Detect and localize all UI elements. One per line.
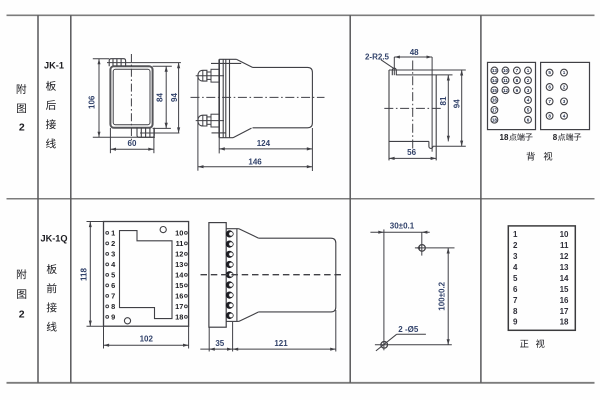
- svg-text:124: 124: [257, 139, 271, 148]
- svg-text:15: 15: [492, 88, 498, 93]
- svg-text:JK-1: JK-1: [44, 61, 64, 71]
- svg-text:16: 16: [492, 98, 498, 103]
- svg-text:2 -Ø5: 2 -Ø5: [398, 325, 419, 334]
- svg-text:10: 10: [175, 228, 183, 237]
- svg-text:1: 1: [527, 68, 530, 73]
- svg-text:9: 9: [516, 88, 519, 93]
- svg-text:6: 6: [527, 117, 530, 122]
- svg-text:18: 18: [492, 117, 498, 122]
- svg-text:146: 146: [248, 158, 262, 167]
- svg-text:10: 10: [503, 68, 509, 73]
- svg-text:7: 7: [111, 291, 115, 300]
- svg-text:4: 4: [513, 263, 518, 272]
- svg-text:8: 8: [553, 133, 558, 142]
- svg-text:12: 12: [175, 249, 183, 258]
- svg-text:2: 2: [19, 122, 25, 134]
- svg-text:84: 84: [155, 93, 164, 102]
- svg-text:8: 8: [111, 302, 115, 311]
- svg-text:12: 12: [503, 88, 509, 93]
- svg-text:2-R2.5: 2-R2.5: [365, 52, 390, 61]
- svg-text:1: 1: [563, 70, 566, 75]
- svg-text:1: 1: [111, 228, 115, 237]
- svg-text:14: 14: [560, 274, 569, 283]
- svg-text:JK-1Q: JK-1Q: [40, 234, 67, 244]
- svg-text:2: 2: [513, 241, 518, 250]
- svg-text:6: 6: [548, 85, 551, 90]
- svg-text:100±0.2: 100±0.2: [437, 281, 446, 310]
- svg-text:2: 2: [563, 85, 566, 90]
- svg-text:5: 5: [513, 274, 518, 283]
- svg-text:30±0.1: 30±0.1: [390, 221, 415, 230]
- svg-text:4: 4: [527, 98, 530, 103]
- svg-text:11: 11: [503, 78, 508, 83]
- svg-text:18: 18: [500, 133, 509, 142]
- svg-text:35: 35: [215, 339, 224, 348]
- svg-text:7: 7: [516, 68, 519, 73]
- svg-text:17: 17: [492, 108, 498, 113]
- svg-text:94: 94: [452, 99, 461, 108]
- svg-text:5: 5: [527, 108, 530, 113]
- svg-text:15: 15: [175, 281, 183, 290]
- svg-text:102: 102: [140, 335, 154, 344]
- svg-text:16: 16: [175, 291, 183, 300]
- svg-text:56: 56: [407, 148, 416, 157]
- svg-text:14: 14: [175, 270, 184, 279]
- svg-text:3: 3: [513, 252, 518, 261]
- svg-text:106: 106: [87, 95, 96, 109]
- svg-text:18: 18: [560, 318, 569, 327]
- svg-text:7: 7: [548, 99, 551, 104]
- svg-text:13: 13: [492, 68, 498, 73]
- svg-text:81: 81: [439, 96, 448, 105]
- svg-text:8: 8: [548, 113, 551, 118]
- svg-text:16: 16: [560, 296, 569, 305]
- svg-text:17: 17: [560, 307, 569, 316]
- svg-text:17: 17: [175, 302, 183, 311]
- svg-text:5: 5: [111, 270, 115, 279]
- svg-text:10: 10: [560, 230, 569, 239]
- svg-text:3: 3: [527, 88, 530, 93]
- svg-text:94: 94: [170, 93, 179, 102]
- svg-text:11: 11: [176, 239, 184, 248]
- svg-text:2: 2: [527, 78, 530, 83]
- svg-text:14: 14: [492, 78, 498, 83]
- svg-text:121: 121: [274, 339, 288, 348]
- svg-text:13: 13: [175, 260, 183, 269]
- svg-text:3: 3: [563, 99, 566, 104]
- svg-text:11: 11: [560, 241, 569, 250]
- svg-text:2: 2: [19, 308, 25, 320]
- svg-text:15: 15: [560, 285, 569, 294]
- svg-text:4: 4: [563, 113, 566, 118]
- svg-text:9: 9: [111, 312, 115, 321]
- svg-text:48: 48: [410, 48, 419, 57]
- svg-text:2: 2: [111, 239, 115, 248]
- svg-text:1: 1: [513, 230, 518, 239]
- svg-text:7: 7: [513, 296, 518, 305]
- svg-text:5: 5: [548, 70, 551, 75]
- svg-text:3: 3: [111, 249, 115, 258]
- svg-text:8: 8: [513, 307, 518, 316]
- svg-text:12: 12: [560, 252, 569, 261]
- svg-text:18: 18: [175, 312, 183, 321]
- svg-text:6: 6: [111, 281, 115, 290]
- svg-text:8: 8: [516, 78, 519, 83]
- svg-text:6: 6: [513, 285, 518, 294]
- svg-text:13: 13: [560, 263, 569, 272]
- svg-text:60: 60: [128, 139, 137, 148]
- svg-text:118: 118: [80, 267, 89, 280]
- svg-text:9: 9: [513, 318, 518, 327]
